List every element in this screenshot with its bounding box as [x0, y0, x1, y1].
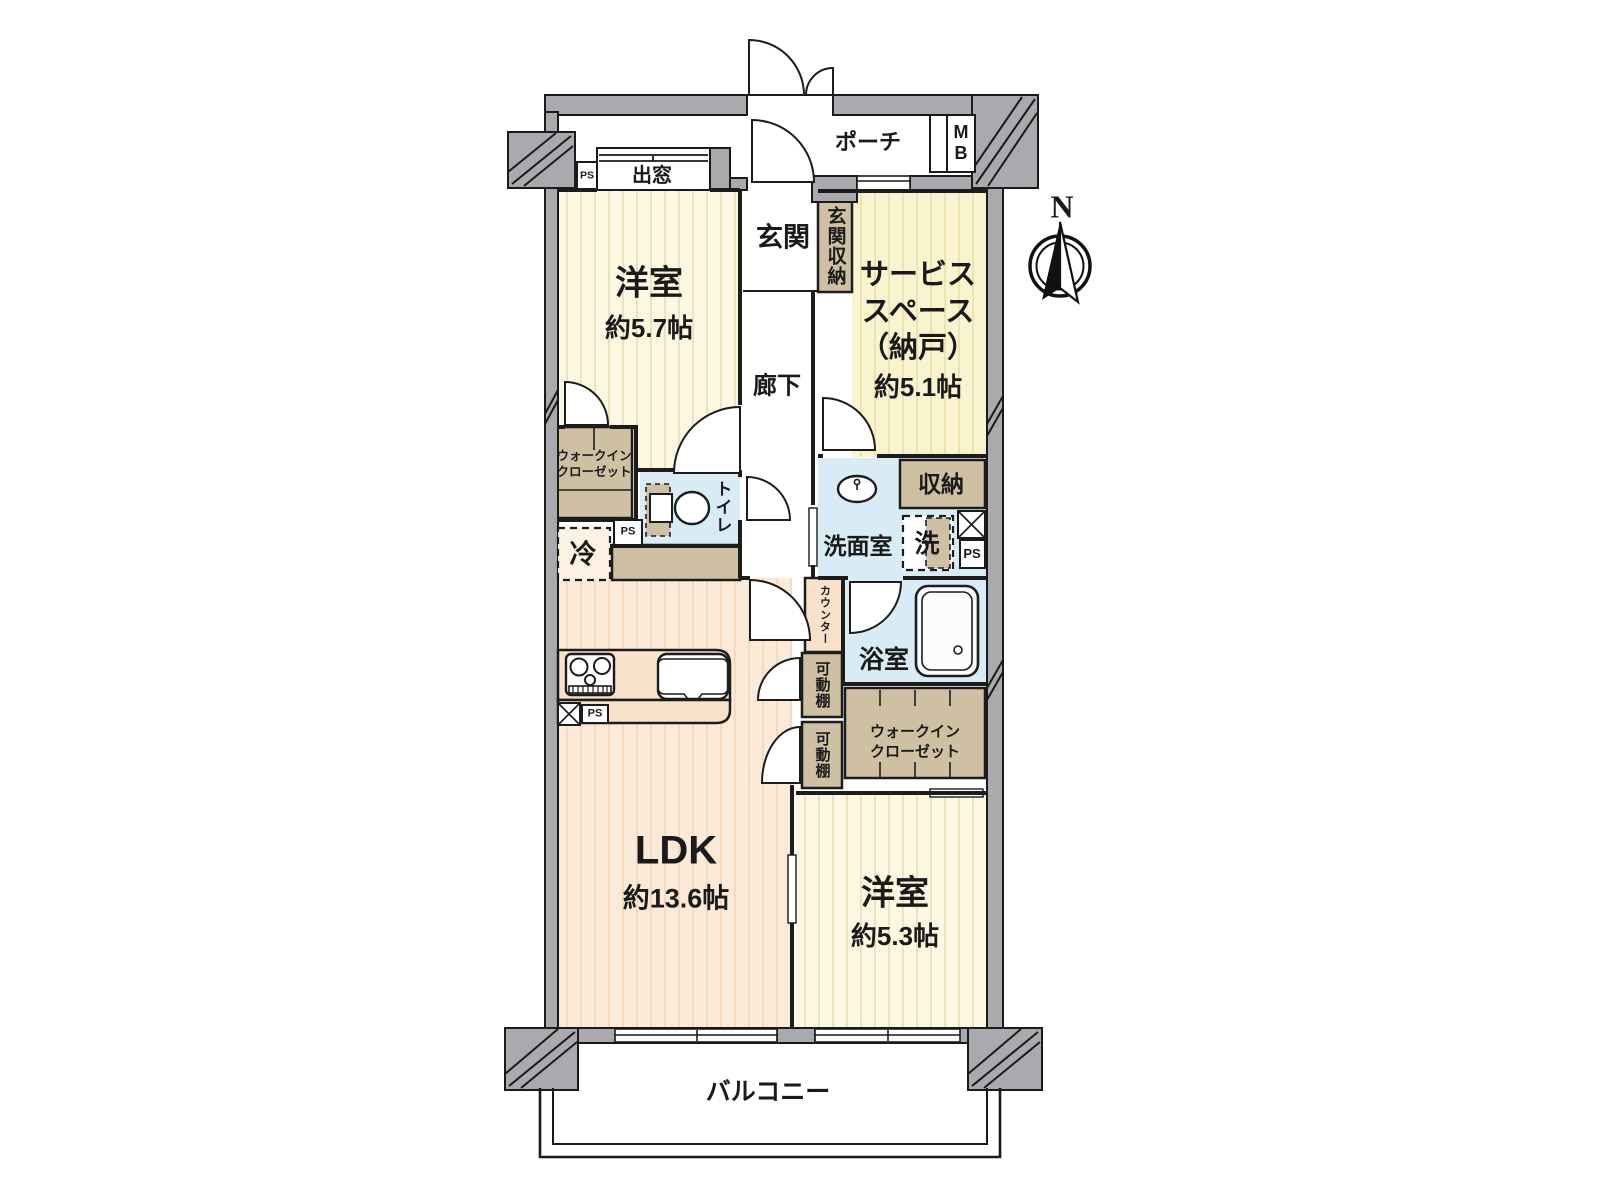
kitchen-sink-icon [658, 654, 728, 699]
washbasin-icon [838, 476, 876, 502]
washer-space [926, 518, 950, 568]
stove-icon [566, 654, 614, 695]
floor-plan-drawing [0, 0, 1600, 1200]
north-compass-icon [1030, 222, 1090, 302]
balcony-rails [540, 1088, 1000, 1157]
kitchen-service-boxes [558, 703, 608, 725]
bathtub-icon [916, 586, 978, 676]
floor-plan: PS 出窓 ポーチ MB 玄関 玄関収納 洋室 約5.7帖 サービス スペース … [0, 0, 1600, 1200]
